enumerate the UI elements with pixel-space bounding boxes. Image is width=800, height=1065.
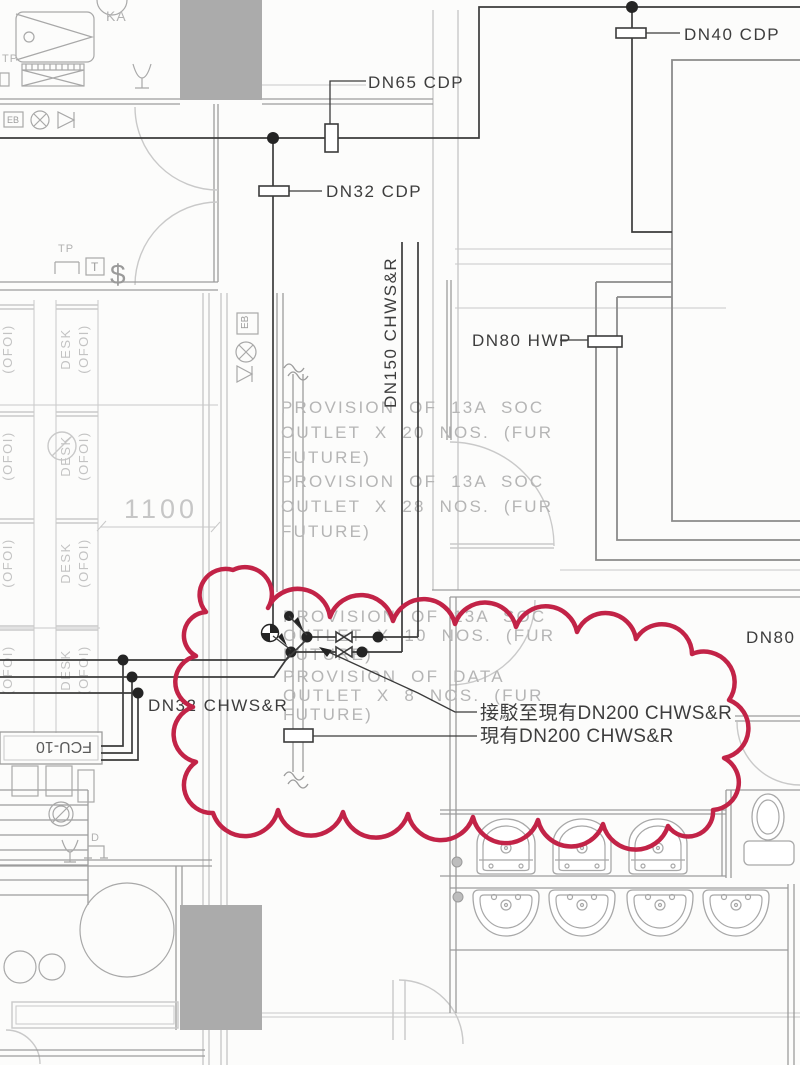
chair: [39, 954, 65, 980]
note-line: PROVISION OF DATA: [283, 667, 505, 686]
tp-label: TP: [58, 243, 74, 255]
sink-icon: [473, 890, 539, 936]
dimension-text: 1100: [124, 494, 198, 524]
desk-label: DESK: [58, 649, 73, 690]
ka-label: KA: [106, 8, 127, 24]
note-line: PROVISION OF 13A SOC: [281, 398, 544, 417]
desk-label: (OFOI): [0, 645, 15, 694]
floor-drain-icon: [453, 892, 463, 902]
annotation-existing-main: 現有DN200 CHWS&R: [480, 725, 674, 747]
sink-icon: [549, 890, 615, 936]
note-line: FUTURE): [281, 448, 371, 467]
door-jamb: [214, 104, 218, 282]
floor-plan-drawing: PROVISION OF 13A SOC OUTLET X 20 NOS. (F…: [0, 0, 800, 1065]
shaft-wall: [672, 60, 800, 521]
fcu-label: FCU-10: [36, 738, 92, 755]
floor-plan-svg: PROVISION OF 13A SOC OUTLET X 20 NOS. (F…: [0, 0, 800, 1065]
pipe-label-dn32-cdp: DN32 CDP: [326, 182, 422, 201]
door-arc: [399, 980, 463, 1044]
pipe-label-dn80-hwp: DN80 HWP: [472, 331, 572, 350]
junction-dot: [357, 647, 368, 658]
junction-dot: [133, 688, 144, 699]
dn150-riser: [402, 242, 418, 652]
pipe-fitting: [259, 186, 289, 196]
provision-note-2: PROVISION OF 13A SOC OUTLET X 28 NOS. (F…: [281, 472, 553, 541]
pipe-label-dn80-right: DN80 H: [746, 628, 800, 647]
door-arc: [135, 202, 218, 285]
desk-label: (OFOI): [76, 431, 91, 480]
urinal-icon: [629, 819, 687, 874]
desk-label: DESK: [58, 542, 73, 583]
junction-dot: [118, 655, 129, 666]
note-line: OUTLET X 20 NOS. (FUR: [281, 423, 553, 442]
equipment-box: [22, 64, 84, 86]
tp-label: TP: [2, 53, 18, 65]
pipe-label-dn40-cdp: DN40 CDP: [684, 25, 780, 44]
door-arc: [135, 107, 218, 190]
no-access-icon: [49, 802, 73, 826]
junction-dot: [267, 132, 279, 144]
junction-dot: [302, 632, 313, 643]
eb-label: EB: [7, 115, 19, 125]
leader-line: [330, 81, 366, 124]
drain-point-icon: [84, 846, 108, 858]
note-line: OUTLET X 28 NOS. (FUR: [281, 497, 553, 516]
desk-label: (OFOI): [0, 324, 15, 373]
urinal-icon: [477, 819, 535, 874]
column: [180, 0, 262, 100]
pipe-label-dn32-chwsr: DN32 CHWS&R: [148, 696, 288, 715]
eb-label: EB: [240, 315, 251, 329]
fixtures: [0, 0, 794, 983]
dn40-cdp-pipe: [632, 7, 672, 232]
pipework: [0, 1, 800, 760]
note-line: FUTURE): [281, 522, 371, 541]
section-symbol: $: [110, 259, 126, 290]
sprinkler-icon: [62, 840, 78, 862]
desk-labels: (OFOI) DESK (OFOI) (OFOI) DESK (OFOI) (O…: [0, 324, 91, 694]
junction-dot: [373, 632, 384, 643]
shaft-wall: [596, 282, 800, 560]
horn-icon: [237, 366, 252, 382]
light-icon: [31, 111, 49, 129]
door-arc: [450, 442, 554, 546]
sink-icon: [703, 890, 769, 936]
desk-label: (OFOI): [0, 431, 15, 480]
junction-dot: [127, 672, 138, 683]
desk-label: (OFOI): [0, 538, 15, 587]
sink-icon: [627, 890, 693, 936]
sprinkler-icon: [133, 64, 151, 88]
pipe-fitting: [616, 28, 646, 38]
pipe-label-dn150-chwsr: DN150 CHWS&R: [381, 257, 400, 408]
chair: [4, 951, 36, 983]
desk-label: (OFOI): [76, 324, 91, 373]
desk-label: (OFOI): [76, 645, 91, 694]
annotation-connect-existing: 接駁至現有DN200 CHWS&R: [480, 702, 732, 724]
shaft-wall: [617, 297, 800, 540]
desk-label: DESK: [58, 435, 73, 476]
light-icon: [236, 342, 256, 362]
provision-note-1: PROVISION OF 13A SOC OUTLET X 20 NOS. (F…: [281, 398, 553, 467]
fcu-branch-pipes: [0, 641, 305, 693]
t-label: T: [91, 260, 99, 274]
d-label: D: [91, 832, 100, 844]
note-line: PROVISION OF 13A SOC: [281, 472, 544, 491]
pipe-fitting: [588, 336, 622, 347]
ahu-unit: [16, 12, 94, 62]
column: [180, 905, 262, 1030]
note-line: OUTLET X 10 NOS. (FUR: [283, 626, 555, 645]
note-line: FUTURE): [283, 705, 373, 724]
desk-label: DESK: [58, 328, 73, 369]
pipe-label-dn65-cdp: DN65 CDP: [368, 73, 464, 92]
door-jamb: [393, 980, 405, 1040]
desk-label: (OFOI): [76, 538, 91, 587]
pipe-fitting: [325, 124, 338, 152]
pipe-fitting: [284, 729, 313, 742]
round-table: [80, 883, 174, 977]
floor-drain-icon: [452, 857, 462, 867]
door-arc: [6, 1030, 40, 1064]
horn-icon: [58, 112, 74, 128]
junction-dot: [626, 1, 638, 13]
toilet-icon: [744, 794, 794, 865]
